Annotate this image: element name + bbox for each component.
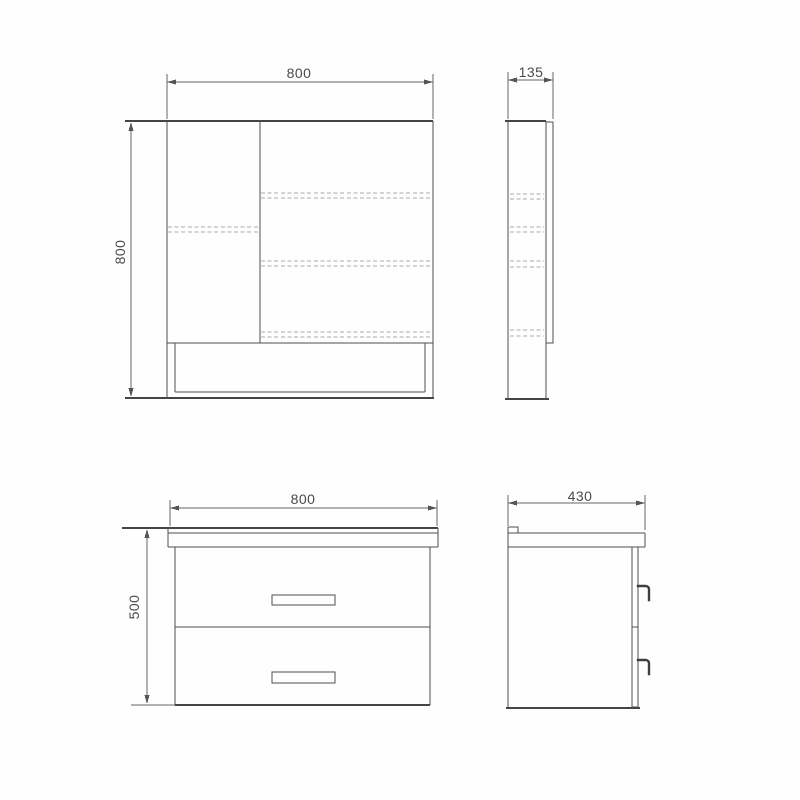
mirror-front-width-label: 800 <box>287 66 312 80</box>
drawer-fronts-profile <box>632 547 638 707</box>
arrowhead-top <box>128 122 133 131</box>
countertop-outline <box>168 528 438 547</box>
arrowhead-left <box>167 79 176 84</box>
vanity-front-width-label: 800 <box>291 492 316 506</box>
arrowhead-bottom <box>128 388 133 397</box>
top-drawer-handle <box>272 595 335 605</box>
arrowhead-left <box>508 500 517 505</box>
right-door-shelf-hidden-lines <box>261 193 431 337</box>
open-shelf-inner-lines <box>175 343 425 392</box>
mirror-front-height-label: 800 <box>113 240 127 265</box>
vanity-side-depth-label: 430 <box>568 489 593 503</box>
left-door-shelf-hidden-lines <box>168 227 258 232</box>
vanity-side-view <box>506 495 649 708</box>
cabinet-body-outline <box>508 121 546 399</box>
arrowhead-right <box>428 505 437 510</box>
arrowhead-left <box>170 505 179 510</box>
arrowhead-right <box>636 500 645 505</box>
cabinet-outline-and-door-divider <box>167 121 433 398</box>
mirror-cabinet-side-view <box>505 72 553 399</box>
bottom-drawer-handle <box>272 672 335 683</box>
vanity-front-height-label: 500 <box>127 595 141 620</box>
shelf-hidden-lines <box>510 194 544 336</box>
bottom-drawer-handle-profile <box>638 660 649 674</box>
mirror-cabinet-front-view <box>125 74 434 398</box>
height-dimension <box>128 122 133 397</box>
arrowhead-top <box>144 529 149 538</box>
technical-drawing-canvas: 800 800 135 800 500 430 <box>0 0 800 800</box>
countertop-back-lip <box>508 527 518 533</box>
countertop-profile <box>508 533 645 547</box>
drawing-svg <box>0 0 800 800</box>
arrowhead-left <box>508 77 517 82</box>
top-drawer-handle-profile <box>638 586 649 600</box>
cabinet-body-and-drawer-divider <box>175 547 430 705</box>
arrowhead-bottom <box>144 695 149 704</box>
mirror-side-depth-label: 135 <box>519 65 544 79</box>
arrowhead-right <box>544 77 553 82</box>
vanity-front-view <box>122 500 438 705</box>
mirror-door-profile <box>546 122 553 343</box>
arrowhead-right <box>424 79 433 84</box>
